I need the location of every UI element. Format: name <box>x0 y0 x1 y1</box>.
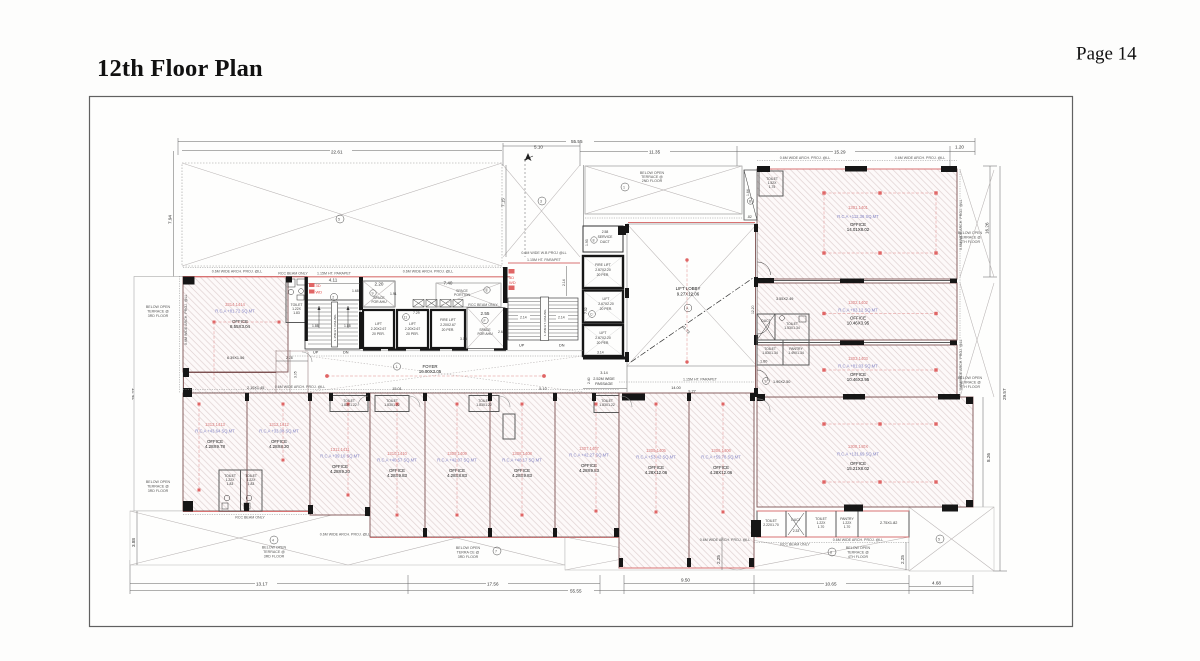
svg-text:TERRACE @: TERRACE @ <box>263 550 285 554</box>
svg-text:1.75: 1.75 <box>769 185 776 189</box>
svg-text:8.26: 8.26 <box>986 453 991 462</box>
svg-text:2.25: 2.25 <box>900 555 905 564</box>
svg-text:BELOW OPEN: BELOW OPEN <box>846 546 871 550</box>
svg-text:1.88: 1.88 <box>344 324 351 328</box>
svg-text:1.70: 1.70 <box>818 525 825 529</box>
svg-text:RCC BEAM ONLY: RCC BEAM ONLY <box>235 516 265 520</box>
svg-text:FIRE LIFT: FIRE LIFT <box>440 318 456 322</box>
svg-text:RCC BEAM ONLY: RCC BEAM ONLY <box>780 543 810 547</box>
svg-text:DN: DN <box>343 351 349 355</box>
svg-text:1.91: 1.91 <box>390 292 397 296</box>
svg-text:7.52: 7.52 <box>584 307 588 314</box>
svg-text:BELOW OPEN: BELOW OPEN <box>456 546 481 550</box>
svg-text:0.6M WIDE W.B PROJ @LL: 0.6M WIDE W.B PROJ @LL <box>521 251 566 255</box>
svg-text:4.28X8.83: 4.28X8.83 <box>447 473 468 478</box>
svg-text:1308,1408: 1308,1408 <box>512 451 532 456</box>
svg-text:12th Floor Plan: 12th Floor Plan <box>97 55 263 82</box>
svg-text:R.C.A +83.12 SQ.MT: R.C.A +83.12 SQ.MT <box>838 308 878 313</box>
svg-text:2.40: 2.40 <box>587 377 591 384</box>
svg-text:6.39X1.56: 6.39X1.56 <box>227 356 244 360</box>
svg-text:TERRACE @: TERRACE @ <box>847 551 869 555</box>
svg-text:4.68: 4.68 <box>932 581 941 586</box>
svg-text:2.20X2.67: 2.20X2.67 <box>440 323 456 327</box>
svg-text:0.6M WIDE ARCH. PROJ. @LL: 0.6M WIDE ARCH. PROJ. @LL <box>403 270 454 274</box>
svg-text:15.01: 15.01 <box>392 387 402 391</box>
svg-text:11: 11 <box>404 316 408 320</box>
svg-text:7.94: 7.94 <box>168 215 173 224</box>
svg-text:8: 8 <box>486 289 488 293</box>
svg-text:0.6M WIDE ARCH. PROJ. @LL: 0.6M WIDE ARCH. PROJ. @LL <box>895 156 946 160</box>
svg-text:5.10: 5.10 <box>539 387 546 391</box>
svg-text:FIRE LIFT: FIRE LIFT <box>595 263 611 267</box>
svg-text:1: 1 <box>623 186 625 190</box>
svg-text:R.C.A +43.64 SQ.MT: R.C.A +43.64 SQ.MT <box>195 429 235 434</box>
svg-text:9.50: 9.50 <box>681 578 690 583</box>
svg-text:2.20X2.67: 2.20X2.67 <box>371 327 387 331</box>
svg-text:0.6M WIDE ARCH. PROJ. @LL: 0.6M WIDE ARCH. PROJ. @LL <box>780 156 831 160</box>
svg-text:29.57: 29.57 <box>1002 388 1007 400</box>
svg-text:0.6M WIDE ARCH. PROJ. @LL: 0.6M WIDE ARCH. PROJ. @LL <box>833 538 884 542</box>
svg-text:FOR AHU: FOR AHU <box>477 332 493 336</box>
svg-text:2.58: 2.58 <box>602 230 609 234</box>
svg-text:2.33: 2.33 <box>793 529 800 533</box>
svg-text:.82: .82 <box>747 215 752 219</box>
svg-text:20 PER.: 20 PER. <box>597 273 610 277</box>
svg-text:3RD FLOOR: 3RD FLOOR <box>148 489 169 493</box>
svg-text:UP: UP <box>519 344 525 348</box>
svg-text:1303,1403: 1303,1403 <box>848 356 868 361</box>
svg-text:1.15M HT. PARAPET: 1.15M HT. PARAPET <box>317 272 352 276</box>
svg-text:7.15: 7.15 <box>501 198 506 207</box>
svg-text:TERRACE @: TERRACE @ <box>147 310 169 314</box>
svg-text:3.55X2.49: 3.55X2.49 <box>776 297 793 301</box>
svg-text:0.6M WIDE ARCH. PROJ. @LL: 0.6M WIDE ARCH. PROJ. @LL <box>275 385 326 389</box>
svg-text:0.6M WIDE ARCH. PROJ. @LL: 0.6M WIDE ARCH. PROJ. @LL <box>959 339 963 390</box>
svg-text:16.00X3.05: 16.00X3.05 <box>419 369 442 374</box>
svg-text:2.14: 2.14 <box>520 316 527 320</box>
svg-text:0.6M WIDE ARCH. PROJ. @LL: 0.6M WIDE ARCH. PROJ. @LL <box>700 538 751 542</box>
svg-text:3.88: 3.88 <box>131 538 136 547</box>
svg-text:2.67X2.20: 2.67X2.20 <box>598 302 614 306</box>
svg-text:3.14: 3.14 <box>600 371 607 375</box>
svg-text:1302,1402: 1302,1402 <box>848 300 868 305</box>
svg-text:2.14: 2.14 <box>562 279 566 286</box>
svg-text:1.83X1.22: 1.83X1.22 <box>384 403 400 407</box>
svg-text:4.28X9.78: 4.28X9.78 <box>205 444 226 449</box>
svg-text:15.29: 15.29 <box>834 150 846 155</box>
svg-text:4.28X8.20: 4.28X8.20 <box>269 444 290 449</box>
svg-text:1.15M HT. RAILING: 1.15M HT. RAILING <box>543 309 547 336</box>
svg-text:2.22X1.70: 2.22X1.70 <box>763 523 779 527</box>
svg-text:1311,1411: 1311,1411 <box>330 447 350 452</box>
svg-text:1.15M HT. RAILING: 1.15M HT. RAILING <box>333 314 337 341</box>
svg-text:1310,1410: 1310,1410 <box>387 451 407 456</box>
svg-text:WD: WD <box>509 280 516 285</box>
svg-text:5.10: 5.10 <box>534 145 543 150</box>
svg-text:11.35: 11.35 <box>649 150 661 155</box>
svg-text:4.28X9.83: 4.28X9.83 <box>387 473 408 478</box>
svg-text:7.29: 7.29 <box>413 311 420 315</box>
svg-text:4: 4 <box>272 539 274 543</box>
svg-text:UP: UP <box>313 351 319 355</box>
svg-text:20 PER.: 20 PER. <box>372 332 385 336</box>
svg-text:0.6M WIDE ARCH. PROJ. @LL: 0.6M WIDE ARCH. PROJ. @LL <box>184 294 188 345</box>
svg-text:1306,1406: 1306,1406 <box>711 448 731 453</box>
svg-text:4.28X9.83: 4.28X9.83 <box>512 473 533 478</box>
svg-text:DUCT: DUCT <box>761 319 770 323</box>
svg-text:2: 2 <box>332 296 334 300</box>
svg-text:DN: DN <box>559 344 565 348</box>
svg-text:12.20: 12.20 <box>751 305 755 314</box>
svg-text:20 PER.: 20 PER. <box>406 332 419 336</box>
svg-text:1.93: 1.93 <box>585 239 589 246</box>
svg-text:1301,1401: 1301,1401 <box>848 205 868 210</box>
svg-text:2.20: 2.20 <box>375 282 384 287</box>
svg-text:LIFT: LIFT <box>603 297 610 301</box>
svg-text:R.C.A +59.76 SQ.MT: R.C.A +59.76 SQ.MT <box>701 455 741 460</box>
svg-text:C: C <box>590 313 593 317</box>
svg-text:PORTION: PORTION <box>454 293 471 297</box>
svg-text:2.67X2.20: 2.67X2.20 <box>595 268 611 272</box>
svg-text:16.26: 16.26 <box>985 222 990 234</box>
svg-text:R.C.A +33.08 SQ.MT: R.C.A +33.08 SQ.MT <box>259 429 299 434</box>
svg-text:1307,1407: 1307,1407 <box>579 446 599 451</box>
svg-text:1.15M HT. PARAPET: 1.15M HT. PARAPET <box>683 378 718 382</box>
svg-text:0.6M WIDE ARCH. PROJ. @LL: 0.6M WIDE ARCH. PROJ. @LL <box>320 533 371 537</box>
svg-text:3RD FLOOR: 3RD FLOOR <box>148 314 169 318</box>
svg-text:FOR AHU: FOR AHU <box>371 300 387 304</box>
svg-text:1.83: 1.83 <box>227 482 234 486</box>
svg-text:2ND FLOOR: 2ND FLOOR <box>642 179 663 183</box>
svg-text:3.05: 3.05 <box>294 371 298 378</box>
svg-text:LIFT: LIFT <box>600 331 607 335</box>
svg-text:7: 7 <box>495 550 497 554</box>
svg-text:10.46X3.95: 10.46X3.95 <box>847 321 870 326</box>
svg-text:1.53X1.34: 1.53X1.34 <box>784 326 800 330</box>
svg-text:1: 1 <box>396 365 398 369</box>
svg-text:1.83X1.22: 1.83X1.22 <box>341 403 357 407</box>
svg-text:1.68: 1.68 <box>352 289 359 293</box>
svg-text:1.90X2.50: 1.90X2.50 <box>773 380 790 384</box>
svg-text:3: 3 <box>540 200 542 204</box>
svg-text:1.83X1.22: 1.83X1.22 <box>476 403 492 407</box>
svg-text:1.64: 1.64 <box>746 189 750 196</box>
svg-text:WD: WD <box>316 290 323 295</box>
svg-text:2.28: 2.28 <box>286 356 293 360</box>
svg-text:8.55X3.04: 8.55X3.04 <box>230 324 251 329</box>
svg-text:2.25: 2.25 <box>716 555 721 564</box>
svg-text:2.67X2.20: 2.67X2.20 <box>595 336 611 340</box>
svg-text:1.83X1.22: 1.83X1.22 <box>599 403 615 407</box>
svg-text:LIFT LOBBY: LIFT LOBBY <box>676 286 701 291</box>
svg-text:14.01X8.02: 14.01X8.02 <box>847 227 870 232</box>
svg-text:PASSAGE: PASSAGE <box>595 382 613 386</box>
svg-text:1313,1413: 1313,1413 <box>205 422 225 427</box>
svg-text:3D: 3D <box>316 283 321 288</box>
svg-text:1.70: 1.70 <box>844 525 851 529</box>
svg-text:9: 9 <box>372 292 374 296</box>
svg-text:5: 5 <box>938 538 940 542</box>
svg-text:TERRA CE @: TERRA CE @ <box>457 551 480 555</box>
svg-text:R.C.A +81.03 SQ.MT: R.C.A +81.03 SQ.MT <box>838 364 878 369</box>
svg-text:22.61: 22.61 <box>331 150 343 155</box>
svg-text:3.14: 3.14 <box>597 351 604 355</box>
svg-text:TERRACE @: TERRACE @ <box>147 485 169 489</box>
svg-text:DUCT: DUCT <box>791 518 800 522</box>
svg-text:2.52M WIDE: 2.52M WIDE <box>593 377 615 381</box>
svg-text:1309,1409: 1309,1409 <box>447 451 467 456</box>
svg-text:55.55: 55.55 <box>570 589 582 594</box>
svg-text:1.49X1.34: 1.49X1.34 <box>788 351 804 355</box>
svg-text:1.60: 1.60 <box>760 360 767 364</box>
svg-text:4.28X9.83: 4.28X9.83 <box>579 468 600 473</box>
svg-text:RCC BEAM ONLY: RCC BEAM ONLY <box>468 303 498 307</box>
svg-text:LIFT: LIFT <box>375 322 382 326</box>
svg-text:BELOW OPEN: BELOW OPEN <box>146 305 171 309</box>
svg-text:2.55: 2.55 <box>481 311 490 316</box>
svg-text:4.28X12.06: 4.28X12.06 <box>645 470 668 475</box>
svg-text:55.55: 55.55 <box>571 139 583 144</box>
svg-text:R.C.A +81.72 SQ.MT: R.C.A +81.72 SQ.MT <box>215 309 255 314</box>
svg-text:14.00: 14.00 <box>671 386 681 390</box>
svg-text:4.28X9.20: 4.28X9.20 <box>330 469 351 474</box>
svg-text:4TH FLOOR: 4TH FLOOR <box>848 555 869 559</box>
svg-text:1.15M HT. PARAPET: 1.15M HT. PARAPET <box>527 258 562 262</box>
svg-text:13.17: 13.17 <box>256 582 268 587</box>
svg-text:RCC BEAM ONLY: RCC BEAM ONLY <box>278 272 308 276</box>
svg-text:8: 8 <box>593 239 595 243</box>
svg-text:8: 8 <box>830 551 832 555</box>
svg-text:2.75X1.82: 2.75X1.82 <box>880 521 897 525</box>
svg-text:3.13: 3.13 <box>460 337 467 341</box>
svg-text:15.21X8.02: 15.21X8.02 <box>847 466 870 471</box>
svg-text:LIFT: LIFT <box>409 322 416 326</box>
svg-text:BELOW OPEN: BELOW OPEN <box>262 546 287 550</box>
svg-text:4.28X12.06: 4.28X12.06 <box>710 470 733 475</box>
svg-text:R.C.A +131.69 SQ.MT: R.C.A +131.69 SQ.MT <box>837 452 879 457</box>
svg-text:1300,140X: 1300,140X <box>848 444 868 449</box>
svg-text:3RD FLOOR: 3RD FLOOR <box>458 555 479 559</box>
svg-text:20 PER.: 20 PER. <box>597 341 610 345</box>
svg-text:R.C.A +39.10 SQ.MT: R.C.A +39.10 SQ.MT <box>320 454 360 459</box>
svg-text:9.27: 9.27 <box>688 390 695 394</box>
svg-text:0.6M WIDE ARCH. PROJ. @LL: 0.6M WIDE ARCH. PROJ. @LL <box>212 270 263 274</box>
svg-text:4.11: 4.11 <box>329 278 338 283</box>
svg-text:9: 9 <box>765 380 767 384</box>
svg-text:0.6M WIDE ARCH. PROJ. @LL: 0.6M WIDE ARCH. PROJ. @LL <box>959 199 963 250</box>
svg-text:SERVICE: SERVICE <box>598 235 614 239</box>
svg-text:1.83: 1.83 <box>248 482 255 486</box>
svg-text:1.88: 1.88 <box>312 324 319 328</box>
svg-text:R.C.A +42.27 SQ.MT: R.C.A +42.27 SQ.MT <box>569 453 609 458</box>
svg-text:10.65: 10.65 <box>825 582 837 587</box>
svg-text:Page 14: Page 14 <box>1076 44 1137 65</box>
svg-text:2.20X2.67: 2.20X2.67 <box>405 327 421 331</box>
svg-text:10.46X3.95: 10.46X3.95 <box>847 377 870 382</box>
svg-text:5: 5 <box>338 218 340 222</box>
svg-text:1312,1412: 1312,1412 <box>269 422 289 427</box>
svg-text:BELOW OPEN: BELOW OPEN <box>146 480 171 484</box>
svg-text:1.20: 1.20 <box>955 145 964 150</box>
svg-text:9.27X12.06: 9.27X12.06 <box>677 292 700 297</box>
svg-text:3RD FLOOR: 3RD FLOOR <box>264 555 285 559</box>
svg-text:R.C.A +112.36 SQ.MT: R.C.A +112.36 SQ.MT <box>837 214 879 219</box>
svg-text:1305,1405: 1305,1405 <box>646 448 666 453</box>
svg-text:1.83X1.34: 1.83X1.34 <box>762 351 778 355</box>
svg-text:2.14: 2.14 <box>558 316 565 320</box>
svg-text:20 PER.: 20 PER. <box>442 328 455 332</box>
svg-text:3314,1414: 3314,1414 <box>225 302 245 307</box>
svg-text:20 PER.: 20 PER. <box>600 307 613 311</box>
svg-text:DUCT: DUCT <box>600 240 609 244</box>
svg-text:1.83: 1.83 <box>293 311 300 315</box>
svg-text:17.56: 17.56 <box>487 582 499 587</box>
